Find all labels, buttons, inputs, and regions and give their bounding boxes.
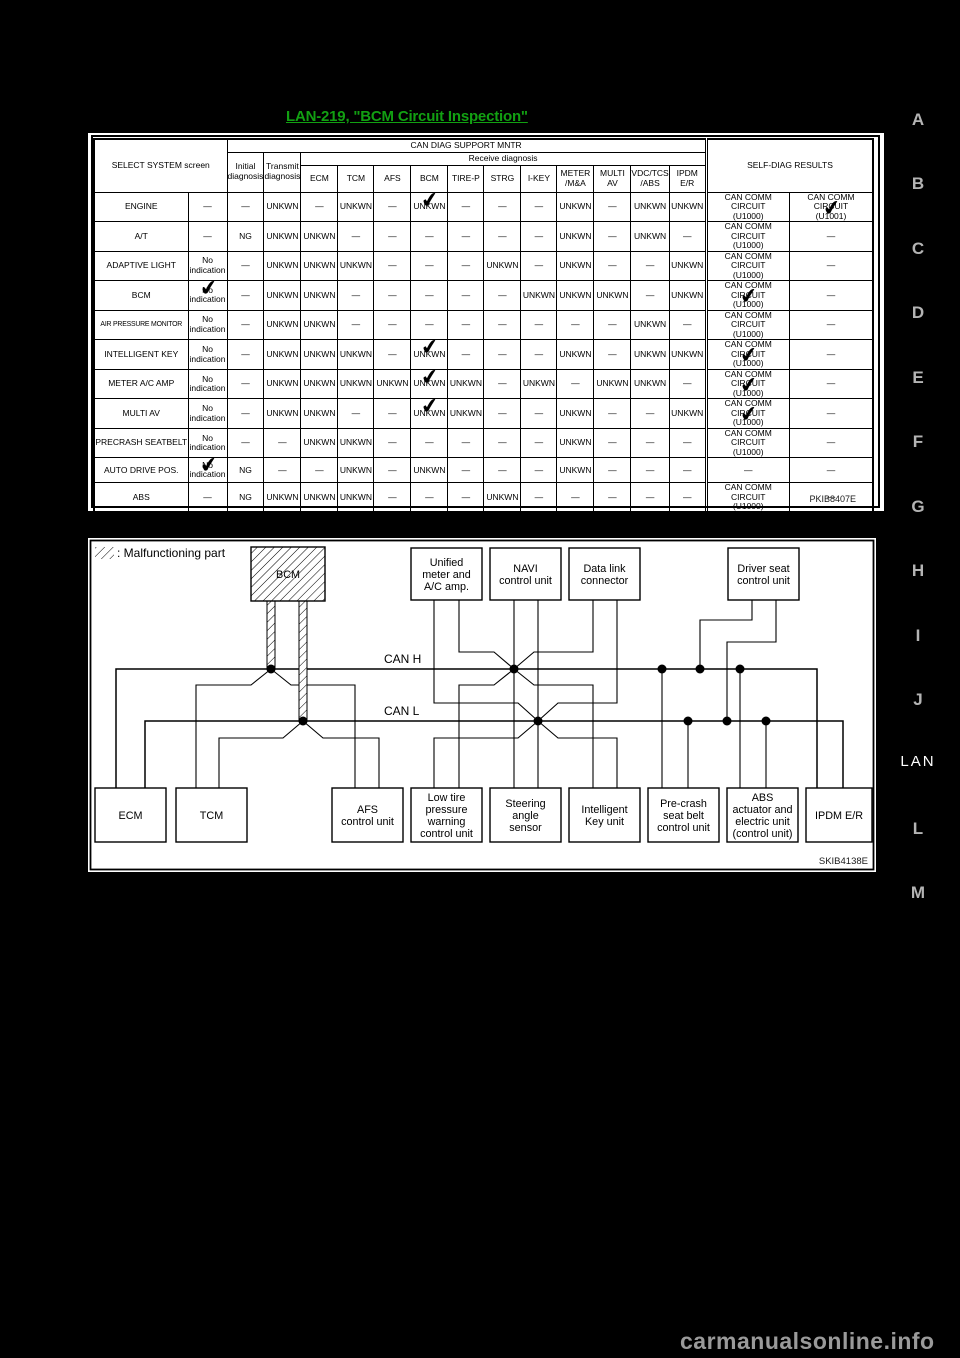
cell-transmit-diagnosis: UNKWN bbox=[264, 310, 301, 340]
box-abs: ABSactuator andelectric unit(control uni… bbox=[727, 788, 798, 842]
box-label: warning bbox=[427, 816, 466, 828]
cell-receive: UNKWN bbox=[301, 483, 338, 513]
cell-receive: UNKWN bbox=[484, 483, 521, 513]
row-name: ADAPTIVE LIGHT bbox=[94, 251, 188, 281]
junction-dot bbox=[736, 665, 745, 674]
cell-receive: — bbox=[411, 483, 448, 513]
cell-receive: UNKWN✔ bbox=[411, 369, 448, 399]
handwritten-checkmark: ✔ bbox=[739, 285, 759, 308]
header-receive-col: I-KEY bbox=[521, 165, 557, 192]
junction-dot bbox=[299, 717, 308, 726]
cell-receive: UNKWN bbox=[669, 399, 706, 429]
cell-self-diag-2: — bbox=[789, 428, 873, 458]
cell-transmit-diagnosis: UNKWN bbox=[264, 251, 301, 281]
cell-receive: — bbox=[338, 222, 374, 252]
cell-receive: UNKWN bbox=[301, 340, 338, 370]
cell-receive: — bbox=[521, 428, 557, 458]
can-wire bbox=[538, 600, 617, 721]
can-wire bbox=[303, 721, 379, 788]
handwritten-checkmark: ✔ bbox=[198, 277, 218, 300]
cell-receive: — bbox=[448, 340, 484, 370]
cell-self-diag-2: — bbox=[789, 310, 873, 340]
cell-receive: — bbox=[521, 222, 557, 252]
handwritten-checkmark: ✔ bbox=[739, 403, 759, 426]
margin-letter-f: F bbox=[894, 432, 942, 452]
can-wire bbox=[434, 600, 538, 721]
header-receive-col: METER /M&A bbox=[557, 165, 594, 192]
cell-receive: — bbox=[484, 192, 521, 222]
table-row: BCMNo indication✔—UNKWNUNKWN—————UNKWNUN… bbox=[94, 281, 873, 311]
cell-transmit-diagnosis: — bbox=[264, 458, 301, 483]
bcm-can-l-wire-malfunction bbox=[299, 601, 307, 721]
margin-letter-b: B bbox=[894, 174, 942, 194]
cell-receive: UNKWN✔ bbox=[411, 192, 448, 222]
cell-screen: No indication bbox=[188, 310, 227, 340]
box-label: Pre-crash bbox=[660, 798, 707, 810]
diag-table-figure: SELECT SYSTEM screenCAN DIAG SUPPORT MNT… bbox=[88, 133, 884, 511]
handwritten-checkmark: ✔ bbox=[420, 336, 440, 359]
cell-receive: — bbox=[669, 483, 706, 513]
cell-screen: — bbox=[188, 222, 227, 252]
table-row: ABS—NGUNKWNUNKWNUNKWN———UNKWN—————CAN CO… bbox=[94, 483, 873, 513]
cell-receive: UNKWN bbox=[521, 369, 557, 399]
cell-initial-diagnosis: — bbox=[227, 369, 264, 399]
cell-receive: UNKWN bbox=[669, 340, 706, 370]
cell-receive: — bbox=[411, 251, 448, 281]
cell-receive: — bbox=[631, 428, 669, 458]
box-label: Low tire bbox=[428, 792, 466, 804]
cell-receive: UNKWN bbox=[557, 399, 594, 429]
cell-receive: — bbox=[301, 458, 338, 483]
cell-receive: UNKWN bbox=[338, 251, 374, 281]
cell-screen: — bbox=[188, 483, 227, 513]
cell-receive: — bbox=[594, 458, 631, 483]
can-wire bbox=[514, 669, 593, 788]
junction-dot bbox=[534, 717, 543, 726]
margin-letter-d: D bbox=[894, 303, 942, 323]
cell-receive: UNKWN bbox=[374, 369, 411, 399]
cell-transmit-diagnosis: UNKWN bbox=[264, 192, 301, 222]
cell-initial-diagnosis: — bbox=[227, 310, 264, 340]
cell-receive: — bbox=[631, 251, 669, 281]
cell-receive: UNKWN bbox=[484, 251, 521, 281]
cell-receive: — bbox=[594, 192, 631, 222]
watermark: carmanualsonline.info bbox=[680, 1328, 935, 1355]
box-label: A/C amp. bbox=[424, 581, 469, 593]
table-row: MULTI AVNo indication—UNKWNUNKWN——UNKWN✔… bbox=[94, 399, 873, 429]
can-h-bus bbox=[116, 669, 817, 788]
margin-letter-l: L bbox=[894, 819, 942, 839]
cell-receive: — bbox=[374, 310, 411, 340]
cell-transmit-diagnosis: UNKWN bbox=[264, 340, 301, 370]
cell-screen: No indication✔ bbox=[188, 281, 227, 311]
box-label: Driver seat bbox=[737, 563, 789, 575]
header-initial-diagnosis: Initial diagnosis bbox=[227, 152, 264, 192]
row-name: ENGINE bbox=[94, 192, 188, 222]
junction-dot bbox=[723, 717, 732, 726]
can-wire bbox=[514, 600, 593, 669]
cell-receive: — bbox=[374, 222, 411, 252]
cell-receive: UNKWN bbox=[557, 281, 594, 311]
cell-initial-diagnosis: — bbox=[227, 399, 264, 429]
row-name: BCM bbox=[94, 281, 188, 311]
cell-receive: — bbox=[484, 428, 521, 458]
cell-receive: — bbox=[411, 428, 448, 458]
cell-receive: UNKWN bbox=[338, 483, 374, 513]
cell-receive: UNKWN✔ bbox=[411, 399, 448, 429]
box-navi: NAVIcontrol unit bbox=[490, 548, 561, 600]
box-datalink: Data linkconnector bbox=[569, 548, 640, 600]
can-wire bbox=[271, 669, 355, 788]
header-receive-col: AFS bbox=[374, 165, 411, 192]
cell-self-diag-2: — bbox=[789, 340, 873, 370]
cell-initial-diagnosis: NG bbox=[227, 458, 264, 483]
cell-receive: — bbox=[338, 281, 374, 311]
box-label: control unit bbox=[499, 575, 552, 587]
cell-receive: UNKWN bbox=[301, 428, 338, 458]
cell-receive: — bbox=[484, 281, 521, 311]
table-row: INTELLIGENT KEYNo indication—UNKWNUNKWNU… bbox=[94, 340, 873, 370]
cell-screen: No indication bbox=[188, 251, 227, 281]
cell-transmit-diagnosis: UNKWN bbox=[264, 399, 301, 429]
margin-letter-lan: LAN bbox=[894, 752, 942, 772]
margin-letter-e: E bbox=[894, 368, 942, 388]
can-wire bbox=[700, 600, 752, 669]
cell-receive: — bbox=[374, 251, 411, 281]
cell-receive: — bbox=[484, 458, 521, 483]
cell-self-diag-1: CAN COMM CIRCUIT (U1000) bbox=[706, 310, 789, 340]
cell-receive: — bbox=[594, 310, 631, 340]
figure-code: PKIB8407E bbox=[809, 494, 856, 504]
header-can-diag-support-mntr: CAN DIAG SUPPORT MNTR bbox=[227, 139, 706, 152]
box-label: seat belt bbox=[663, 810, 704, 822]
cell-screen: No indication✔ bbox=[188, 458, 227, 483]
cell-receive: — bbox=[521, 483, 557, 513]
header-receive-diagnosis: Receive diagnosis bbox=[301, 152, 706, 165]
cell-receive: — bbox=[521, 340, 557, 370]
cell-receive: — bbox=[557, 369, 594, 399]
margin-letter-i: I bbox=[894, 626, 942, 646]
figure-code: SKIB4138E bbox=[819, 856, 868, 867]
cell-initial-diagnosis: — bbox=[227, 281, 264, 311]
cell-receive: — bbox=[594, 340, 631, 370]
margin-letter-g: G bbox=[894, 497, 942, 517]
can-wire bbox=[219, 721, 303, 788]
cell-receive: UNKWN bbox=[594, 369, 631, 399]
box-label: Unified bbox=[430, 557, 464, 569]
cell-receive: — bbox=[374, 428, 411, 458]
cell-receive: UNKWN bbox=[631, 369, 669, 399]
cell-screen: No indication bbox=[188, 399, 227, 429]
box-intelligent-key: IntelligentKey unit bbox=[569, 788, 640, 842]
can-wire bbox=[459, 600, 514, 669]
cell-receive: — bbox=[448, 483, 484, 513]
cell-self-diag-2: CAN COMM CIRCUIT (U1001)✔ bbox=[789, 192, 873, 222]
box-ecm: ECM bbox=[95, 788, 166, 842]
cell-receive: — bbox=[448, 310, 484, 340]
handwritten-checkmark: ✔ bbox=[739, 374, 759, 397]
cell-receive: — bbox=[631, 483, 669, 513]
table-row: METER A/C AMPNo indication—UNKWNUNKWNUNK… bbox=[94, 369, 873, 399]
cell-receive: UNKWN bbox=[557, 192, 594, 222]
box-label: Data link bbox=[583, 563, 626, 575]
row-name: AUTO DRIVE POS. bbox=[94, 458, 188, 483]
cell-receive: — bbox=[374, 458, 411, 483]
cell-receive: — bbox=[484, 310, 521, 340]
cell-receive: UNKWN bbox=[669, 281, 706, 311]
margin-letter-m: M bbox=[894, 883, 942, 903]
header-receive-col: ECM bbox=[301, 165, 338, 192]
cell-receive: — bbox=[374, 192, 411, 222]
cell-receive: UNKWN bbox=[557, 428, 594, 458]
cell-receive: — bbox=[521, 310, 557, 340]
cell-receive: — bbox=[521, 458, 557, 483]
cell-receive: — bbox=[374, 281, 411, 311]
cell-self-diag-2: — bbox=[789, 399, 873, 429]
cell-receive: UNKWN bbox=[521, 281, 557, 311]
header-receive-col: IPDM E/R bbox=[669, 165, 706, 192]
cell-receive: — bbox=[411, 310, 448, 340]
reference-link-title[interactable]: LAN-219, "BCM Circuit Inspection" bbox=[286, 108, 528, 125]
table-row: ENGINE——UNKWN—UNKWN—UNKWN✔———UNKWN—UNKWN… bbox=[94, 192, 873, 222]
cell-self-diag-1: CAN COMM CIRCUIT (U1000)✔ bbox=[706, 369, 789, 399]
cell-receive: — bbox=[411, 281, 448, 311]
cell-receive: UNKWN bbox=[301, 310, 338, 340]
cell-receive: UNKWN bbox=[301, 251, 338, 281]
cell-self-diag-2: — bbox=[789, 281, 873, 311]
cell-receive: — bbox=[301, 192, 338, 222]
cell-self-diag-1: CAN COMM CIRCUIT (U1000)✔ bbox=[706, 281, 789, 311]
cell-receive: UNKWN bbox=[411, 458, 448, 483]
row-name: PRECRASH SEATBELT bbox=[94, 428, 188, 458]
cell-receive: — bbox=[448, 192, 484, 222]
can-wire bbox=[434, 721, 538, 788]
cell-initial-diagnosis: NG bbox=[227, 483, 264, 513]
row-name: AIR PRESSURE MONITOR bbox=[94, 310, 188, 340]
cell-receive: UNKWN bbox=[631, 192, 669, 222]
cell-self-diag-1: CAN COMM CIRCUIT (U1000) bbox=[706, 222, 789, 252]
manual-page: { "page": { "title": "LAN-219, \"BCM Cir… bbox=[0, 0, 960, 1358]
handwritten-checkmark: ✔ bbox=[198, 454, 218, 477]
junction-dot bbox=[684, 717, 693, 726]
cell-receive: — bbox=[669, 369, 706, 399]
table-row: ADAPTIVE LIGHTNo indication—UNKWNUNKWNUN… bbox=[94, 251, 873, 281]
cell-screen: No indication bbox=[188, 340, 227, 370]
cell-initial-diagnosis: — bbox=[227, 428, 264, 458]
header-transmit-diagnosis: Transmit diagnosis bbox=[264, 152, 301, 192]
table-row: AUTO DRIVE POS.No indication✔NG——UNKWN—U… bbox=[94, 458, 873, 483]
can-h-label: CAN H bbox=[384, 652, 421, 666]
cell-receive: UNKWN bbox=[301, 399, 338, 429]
handwritten-checkmark: ✔ bbox=[420, 509, 440, 532]
can-l-bus bbox=[145, 721, 843, 788]
can-bus-wiring-diagram: : Malfunctioning partCAN HCAN LBCMUnifie… bbox=[88, 538, 876, 872]
box-steering: Steeringanglesensor bbox=[490, 788, 561, 842]
cell-receive: — bbox=[374, 483, 411, 513]
box-label: NAVI bbox=[513, 563, 537, 575]
table-row: AIR PRESSURE MONITORNo indication—UNKWNU… bbox=[94, 310, 873, 340]
header-self-diag-results: SELF-DIAG RESULTS bbox=[706, 139, 873, 192]
box-label: BCM bbox=[276, 569, 300, 581]
margin-letter-c: C bbox=[894, 239, 942, 259]
table-row: A/T—NGUNKWNUNKWN——————UNKWN—UNKWN—CAN CO… bbox=[94, 222, 873, 252]
box-ipdm: IPDM E/R bbox=[806, 788, 872, 842]
box-label: ABS bbox=[752, 792, 774, 804]
cell-receive: — bbox=[448, 428, 484, 458]
box-label: control unit bbox=[341, 816, 394, 828]
box-bcm: BCM bbox=[251, 547, 325, 601]
handwritten-checkmark: ✔ bbox=[739, 344, 759, 367]
cell-receive: UNKWN bbox=[301, 369, 338, 399]
cell-receive: — bbox=[594, 222, 631, 252]
row-name: INTELLIGENT KEY bbox=[94, 340, 188, 370]
cell-receive: — bbox=[521, 251, 557, 281]
cell-self-diag-1: CAN COMM CIRCUIT (U1000)✔ bbox=[706, 399, 789, 429]
handwritten-checkmark: ✔ bbox=[420, 366, 440, 389]
margin-letter-a: A bbox=[894, 110, 942, 130]
cell-self-diag-1: CAN COMM CIRCUIT (U1000)✔ bbox=[706, 340, 789, 370]
cell-receive: — bbox=[448, 458, 484, 483]
cell-receive: — bbox=[374, 399, 411, 429]
cell-receive: — bbox=[557, 310, 594, 340]
box-driver-seat: Driver seatcontrol unit bbox=[728, 548, 799, 600]
cell-receive: UNKWN bbox=[338, 369, 374, 399]
cell-receive: — bbox=[557, 483, 594, 513]
header-receive-col: TIRE-P bbox=[448, 165, 484, 192]
cell-receive: — bbox=[338, 310, 374, 340]
can-wire bbox=[459, 669, 514, 788]
box-label: control unit bbox=[657, 822, 710, 834]
box-label: pressure bbox=[425, 804, 467, 816]
cell-receive: — bbox=[484, 340, 521, 370]
cell-screen: No indication bbox=[188, 428, 227, 458]
header-receive-col: MULTI AV bbox=[594, 165, 631, 192]
cell-initial-diagnosis: — bbox=[227, 340, 264, 370]
cell-receive: — bbox=[374, 340, 411, 370]
bcm-can-h-wire-malfunction bbox=[267, 601, 275, 669]
header-receive-col: VDC/TCS /ABS bbox=[631, 165, 669, 192]
cell-receive: — bbox=[521, 399, 557, 429]
header-receive-col: STRG bbox=[484, 165, 521, 192]
box-tcm: TCM bbox=[176, 788, 247, 842]
cell-receive: UNKWN bbox=[669, 251, 706, 281]
cell-receive: — bbox=[338, 399, 374, 429]
box-label: connector bbox=[581, 575, 629, 587]
can-wire bbox=[196, 669, 271, 788]
cell-receive: — bbox=[411, 222, 448, 252]
cell-initial-diagnosis: — bbox=[227, 251, 264, 281]
box-label: AFS bbox=[357, 804, 378, 816]
junction-dot bbox=[762, 717, 771, 726]
cell-receive: — bbox=[484, 369, 521, 399]
box-label: IPDM E/R bbox=[815, 810, 863, 822]
cell-self-diag-1: CAN COMM CIRCUIT (U1000) bbox=[706, 192, 789, 222]
cell-receive: UNKWN bbox=[301, 281, 338, 311]
handwritten-checkmark: ✔ bbox=[420, 188, 440, 211]
junction-dot bbox=[510, 665, 519, 674]
cell-receive: UNKWN bbox=[631, 310, 669, 340]
cell-receive: UNKWN bbox=[557, 340, 594, 370]
cell-self-diag-1: CAN COMM CIRCUIT (U1000) bbox=[706, 428, 789, 458]
box-label: meter and bbox=[422, 569, 471, 581]
cell-transmit-diagnosis: UNKWN bbox=[264, 222, 301, 252]
can-wiring-diagram-figure: : Malfunctioning partCAN HCAN LBCMUnifie… bbox=[88, 538, 876, 872]
cell-receive: UNKWN bbox=[557, 251, 594, 281]
can-l-label: CAN L bbox=[384, 704, 420, 718]
cell-receive: UNKWN bbox=[338, 340, 374, 370]
cell-screen: — bbox=[188, 192, 227, 222]
handwritten-checkmark: ✔ bbox=[822, 196, 842, 219]
cell-receive: — bbox=[594, 251, 631, 281]
malfunction-hatch-swatch bbox=[95, 547, 114, 559]
cell-receive: — bbox=[594, 428, 631, 458]
cell-self-diag-1: CAN COMM CIRCUIT (U1000) bbox=[706, 483, 789, 513]
cell-transmit-diagnosis: UNKWN bbox=[264, 281, 301, 311]
cell-receive: UNKWN bbox=[631, 222, 669, 252]
cell-receive: UNKWN✔ bbox=[411, 340, 448, 370]
handwritten-checkmark: ✔ bbox=[420, 395, 440, 418]
header-receive-col: BCM bbox=[411, 165, 448, 192]
box-label: control unit bbox=[420, 828, 473, 840]
handwritten-checkmark: ✔ bbox=[739, 517, 759, 540]
cell-initial-diagnosis: NG bbox=[227, 222, 264, 252]
cell-receive: — bbox=[594, 483, 631, 513]
junction-dot bbox=[658, 665, 667, 674]
can-wire bbox=[538, 721, 617, 788]
cell-receive: UNKWN bbox=[631, 340, 669, 370]
box-precrash: Pre-crashseat beltcontrol unit bbox=[648, 788, 719, 842]
cell-receive: UNKWN bbox=[448, 399, 484, 429]
row-name: METER A/C AMP bbox=[94, 369, 188, 399]
junction-dot bbox=[696, 665, 705, 674]
row-name: MULTI AV bbox=[94, 399, 188, 429]
cell-self-diag-1: — bbox=[706, 458, 789, 483]
cell-self-diag-2: — bbox=[789, 458, 873, 483]
box-label: (control unit) bbox=[732, 828, 792, 840]
legend-label: : Malfunctioning part bbox=[117, 546, 226, 560]
table-row: PRECRASH SEATBELTNo indication——UNKWNUNK… bbox=[94, 428, 873, 458]
junction-dot bbox=[267, 665, 276, 674]
cell-receive: — bbox=[448, 281, 484, 311]
cell-receive: — bbox=[484, 222, 521, 252]
cell-receive: UNKWN bbox=[557, 222, 594, 252]
box-label: electric unit bbox=[735, 816, 790, 828]
box-label: Key unit bbox=[585, 816, 624, 828]
cell-screen: No indication bbox=[188, 369, 227, 399]
box-label: sensor bbox=[509, 822, 542, 834]
cell-receive: — bbox=[448, 222, 484, 252]
cell-transmit-diagnosis: UNKWN bbox=[264, 369, 301, 399]
cell-receive: UNKWN bbox=[557, 458, 594, 483]
margin-letter-h: H bbox=[894, 561, 942, 581]
box-low-tire: Low tirepressurewarningcontrol unit bbox=[411, 788, 482, 842]
row-name: ABS bbox=[94, 483, 188, 513]
cell-receive: — bbox=[594, 399, 631, 429]
box-label: angle bbox=[512, 810, 538, 822]
box-label: TCM bbox=[200, 810, 223, 822]
cell-receive: — bbox=[631, 281, 669, 311]
box-label: Intelligent bbox=[581, 804, 627, 816]
cell-receive: — bbox=[669, 222, 706, 252]
cell-receive: UNKWN bbox=[669, 192, 706, 222]
cell-receive: UNKWN bbox=[338, 458, 374, 483]
cell-receive: — bbox=[669, 428, 706, 458]
box-afs: AFScontrol unit bbox=[332, 788, 403, 842]
row-name: A/T bbox=[94, 222, 188, 252]
header-receive-col: TCM bbox=[338, 165, 374, 192]
cell-transmit-diagnosis: UNKWN bbox=[264, 483, 301, 513]
box-unified: Unifiedmeter andA/C amp. bbox=[411, 548, 482, 600]
